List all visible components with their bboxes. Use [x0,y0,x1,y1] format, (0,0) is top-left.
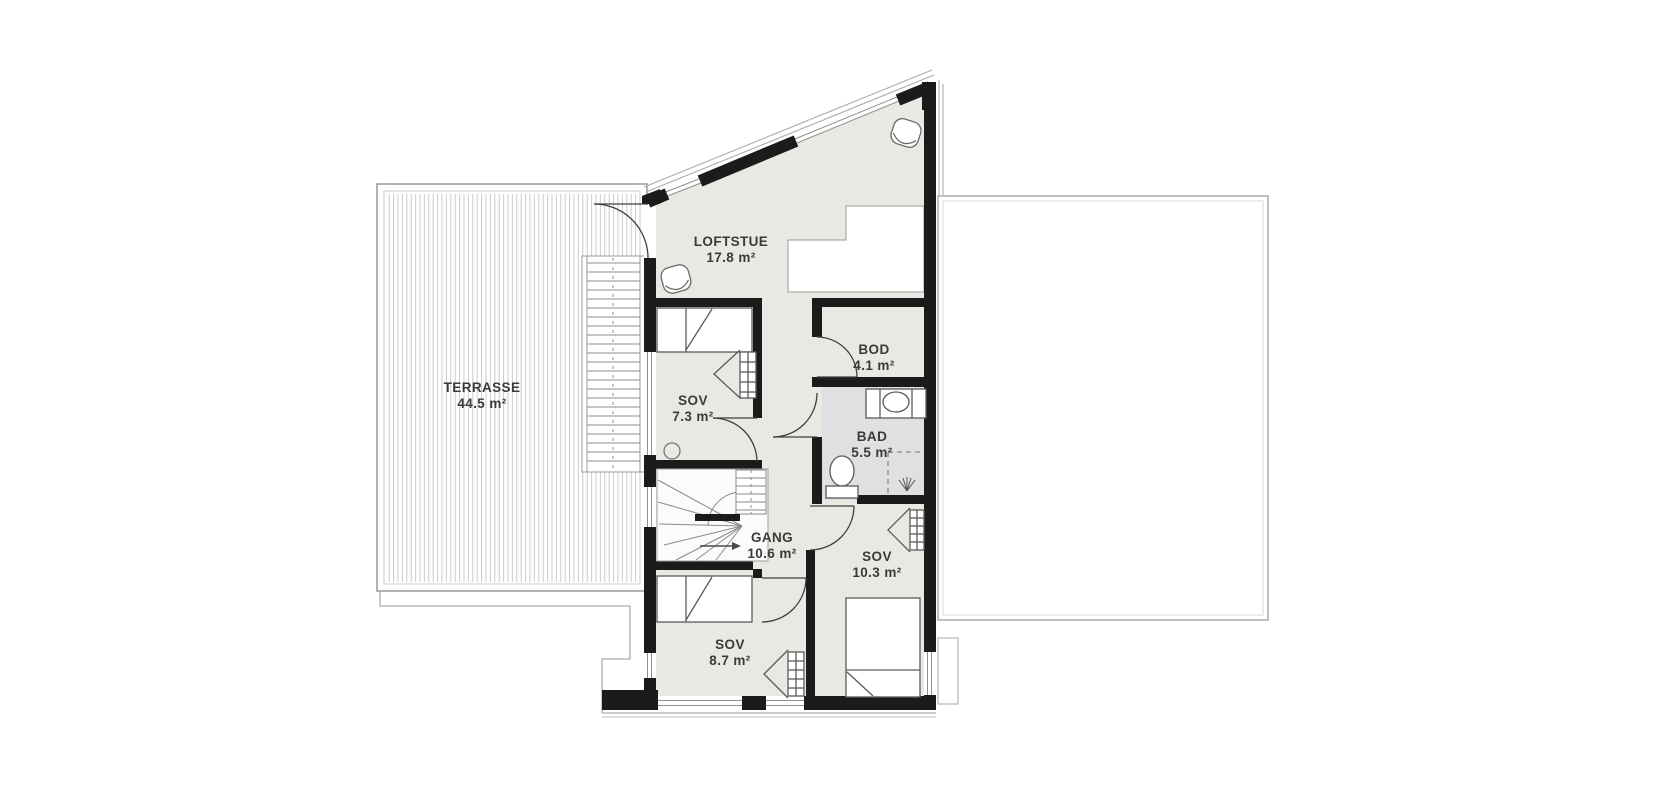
floorplan-drawing: TERRASSE 44.5 m² LOFTSTUE 17.8 m² SOV 7.… [0,0,1670,800]
svg-text:SOV: SOV [678,393,708,408]
label-sov-87: SOV 8.7 m² [709,637,751,668]
terrace-door-opening [644,204,656,258]
wall-bad-west [812,437,822,503]
svg-text:SOV: SOV [715,637,745,652]
roof-outline-bump [938,638,958,704]
bed-sov-87 [657,576,752,622]
roof-outline-right [938,196,1268,620]
label-sov-73: SOV 7.3 m² [672,393,714,424]
svg-text:LOFTSTUE: LOFTSTUE [694,234,768,249]
svg-text:4.1 m²: 4.1 m² [853,358,895,373]
wall-stair-south [644,561,753,570]
label-bad: BAD 5.5 m² [851,429,893,460]
window-east [924,652,936,695]
wall-bod-bad [812,377,936,387]
exterior-stair [582,256,645,472]
svg-text:SOV: SOV [862,549,892,564]
svg-text:10.6 m²: 10.6 m² [747,546,796,561]
svg-text:TERRASSE: TERRASSE [444,380,521,395]
svg-text:5.5 m²: 5.5 m² [851,445,893,460]
bed-sov-103 [846,598,920,697]
window-west-3 [644,653,656,678]
wall-sov73-south [644,460,762,469]
bathroom-vanity [866,389,926,418]
floorplan-page: TERRASSE 44.5 m² LOFTSTUE 17.8 m² SOV 7.… [0,0,1670,800]
wall-bod-west [812,298,822,337]
wall-sov73-north [656,298,762,307]
svg-text:BAD: BAD [857,429,887,444]
svg-text:GANG: GANG [751,530,793,545]
svg-text:BOD: BOD [858,342,889,357]
window-south-1 [658,696,742,710]
label-gang: GANG 10.6 m² [747,530,796,561]
wall-bod-north [812,298,936,307]
svg-text:10.3 m²: 10.3 m² [852,565,901,580]
stair-straight-flight [736,470,766,514]
window-south-2 [766,696,804,710]
svg-text:8.7 m²: 8.7 m² [709,653,751,668]
stair-landing-edge [695,514,740,521]
label-bod: BOD 4.1 m² [853,342,895,373]
svg-text:7.3 m²: 7.3 m² [672,409,714,424]
svg-text:44.5 m²: 44.5 m² [457,396,506,411]
svg-text:17.8 m²: 17.8 m² [706,250,755,265]
bed-sov-73 [657,308,752,352]
window-west-2 [644,487,656,527]
wall-sov87-east [806,570,815,700]
wall-bad-south [857,495,936,504]
window-west-1 [644,352,656,455]
